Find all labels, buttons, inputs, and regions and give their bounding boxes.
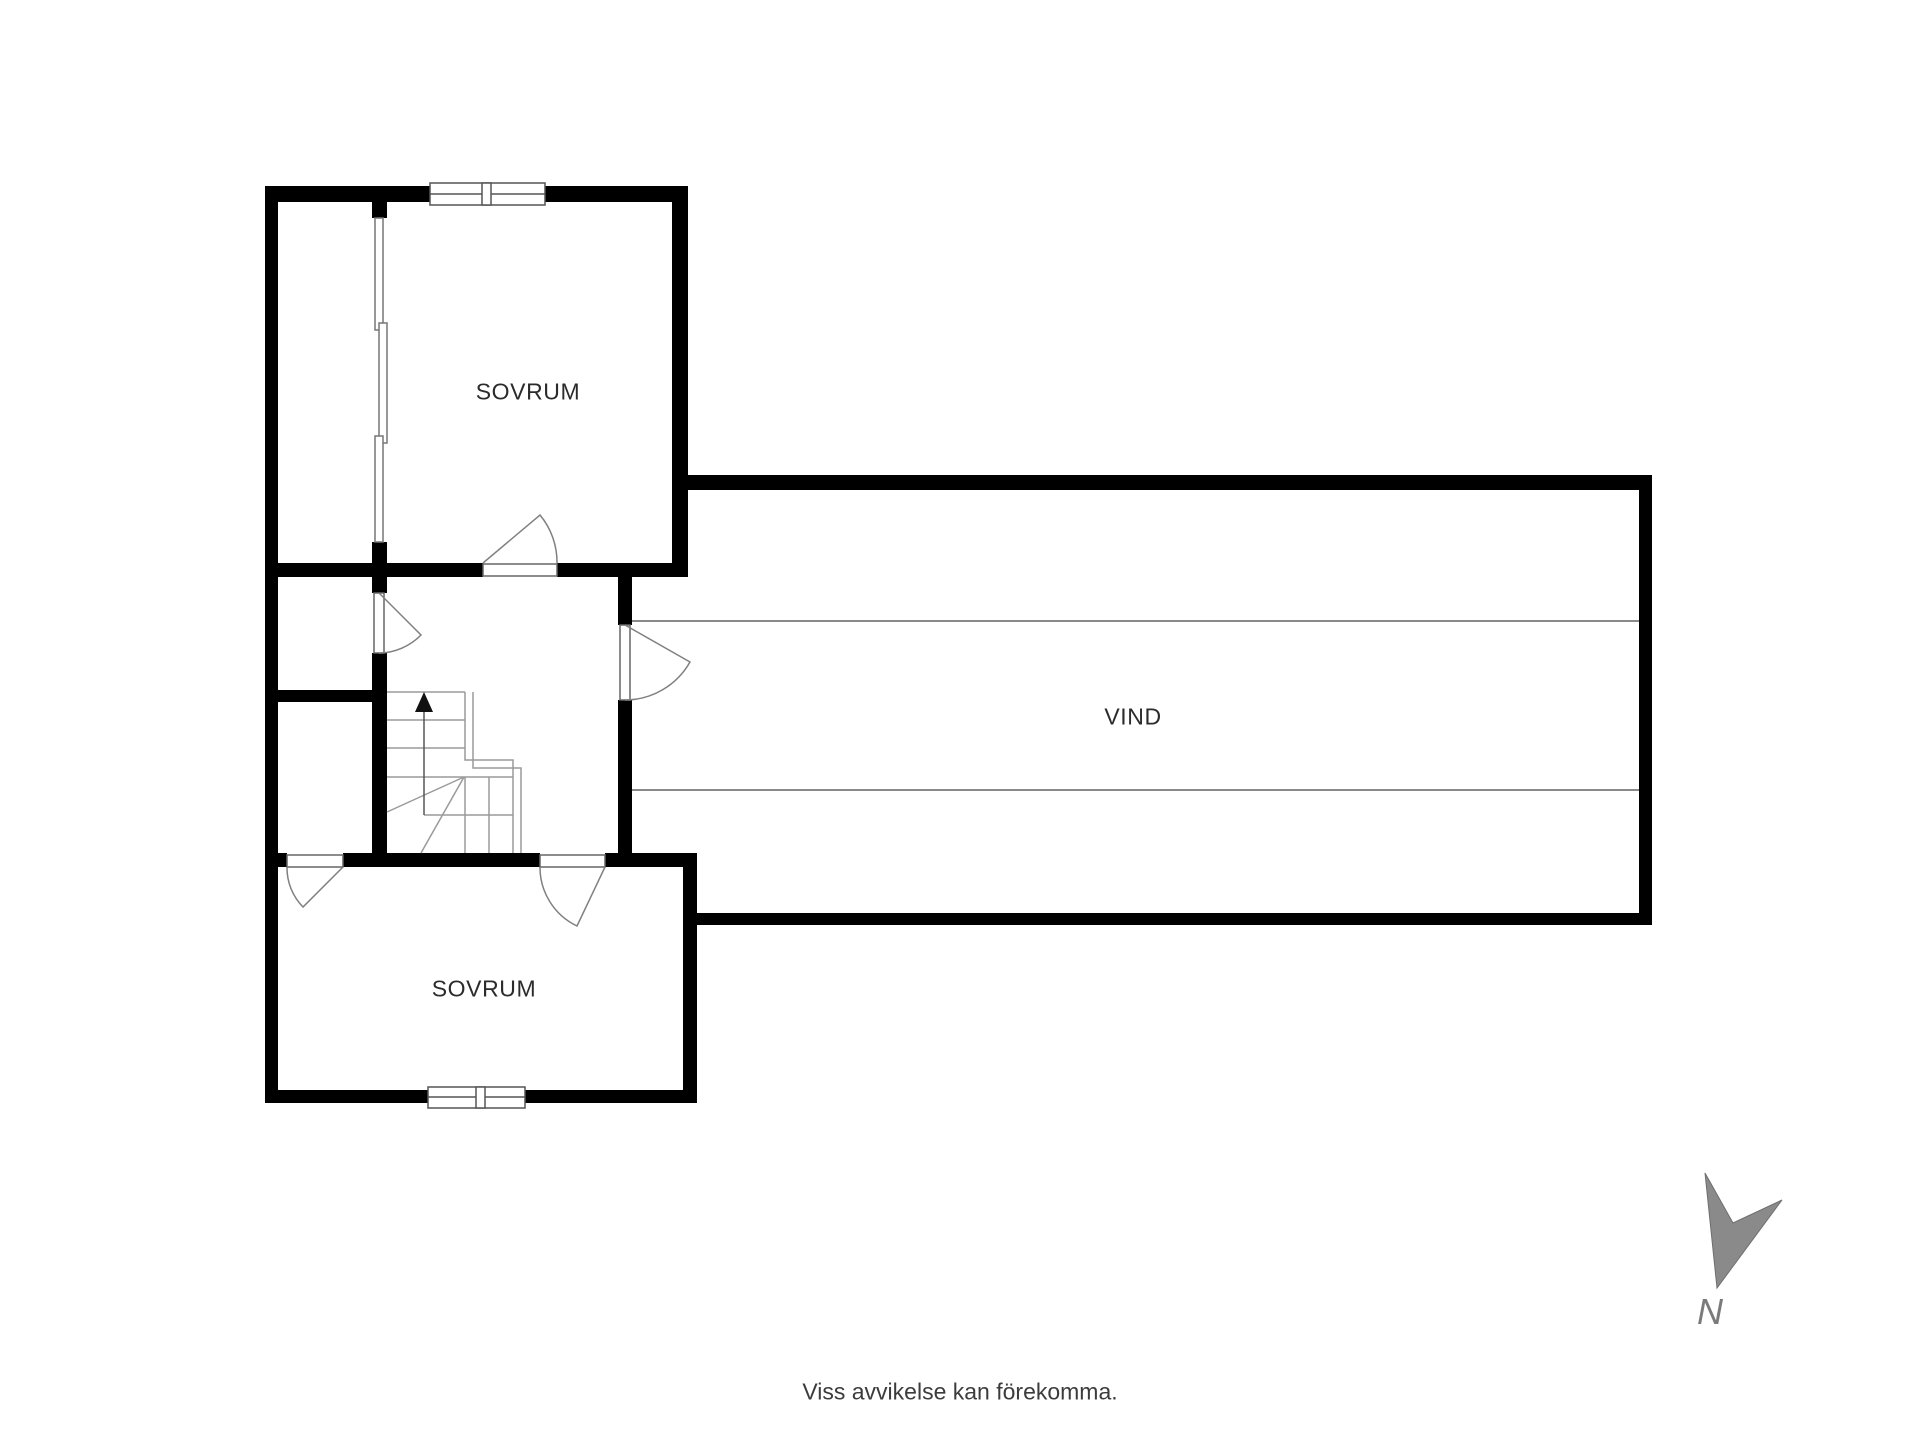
wall-segment: [683, 475, 1652, 490]
door-top-bedroom: [483, 515, 557, 576]
winder-tread: [387, 777, 464, 812]
disclaimer-text: Viss avvikelse kan förekomma.: [802, 1379, 1117, 1406]
wall-segment: [545, 186, 688, 202]
wall-segment: [372, 202, 387, 218]
wall-segment: [372, 542, 387, 563]
partition-panel: [379, 323, 387, 443]
stair-stringer: [473, 692, 521, 853]
wall-segment: [278, 690, 387, 702]
wall-segment: [618, 700, 632, 853]
stair-direction-arrow: [415, 692, 433, 815]
windows: [428, 183, 545, 1108]
floorplan-page: SOVRUM VIND SOVRUM N Viss avvikelse kan …: [0, 0, 1920, 1440]
partition-panel: [375, 218, 383, 330]
room-label-sovrum-bottom: SOVRUM: [432, 976, 537, 1003]
wall-segment: [278, 853, 287, 867]
wall-segment: [265, 186, 278, 1103]
wall-segment: [372, 577, 387, 593]
wall-segment: [690, 913, 1652, 925]
wall-segment: [265, 186, 430, 202]
walls: [265, 186, 1652, 1103]
wall-segment: [343, 853, 540, 867]
stairs: [387, 692, 521, 853]
wall-segment: [525, 1090, 697, 1103]
door-bottom-left: [287, 855, 343, 907]
light-partition: [375, 218, 387, 542]
window-bottom: [428, 1087, 525, 1108]
door-closet: [374, 593, 421, 653]
wall-segment: [1639, 475, 1652, 925]
wall-segment: [278, 563, 483, 577]
floorplan-drawing: [0, 0, 1920, 1440]
door-bottom-bedroom: [540, 855, 605, 926]
partition-panel: [375, 436, 383, 542]
wall-segment: [672, 186, 688, 577]
wall-segment: [265, 1090, 428, 1103]
north-arrow-icon: [1705, 1173, 1782, 1288]
room-label-sovrum-top: SOVRUM: [476, 379, 581, 406]
wall-segment: [618, 577, 632, 625]
wall-segment: [557, 563, 688, 577]
window-top: [430, 183, 545, 205]
room-label-vind: VIND: [1104, 704, 1161, 731]
wall-segment: [372, 653, 387, 853]
wall-segment: [683, 853, 697, 1103]
door-attic: [620, 625, 690, 700]
compass-north-label: N: [1697, 1291, 1723, 1333]
